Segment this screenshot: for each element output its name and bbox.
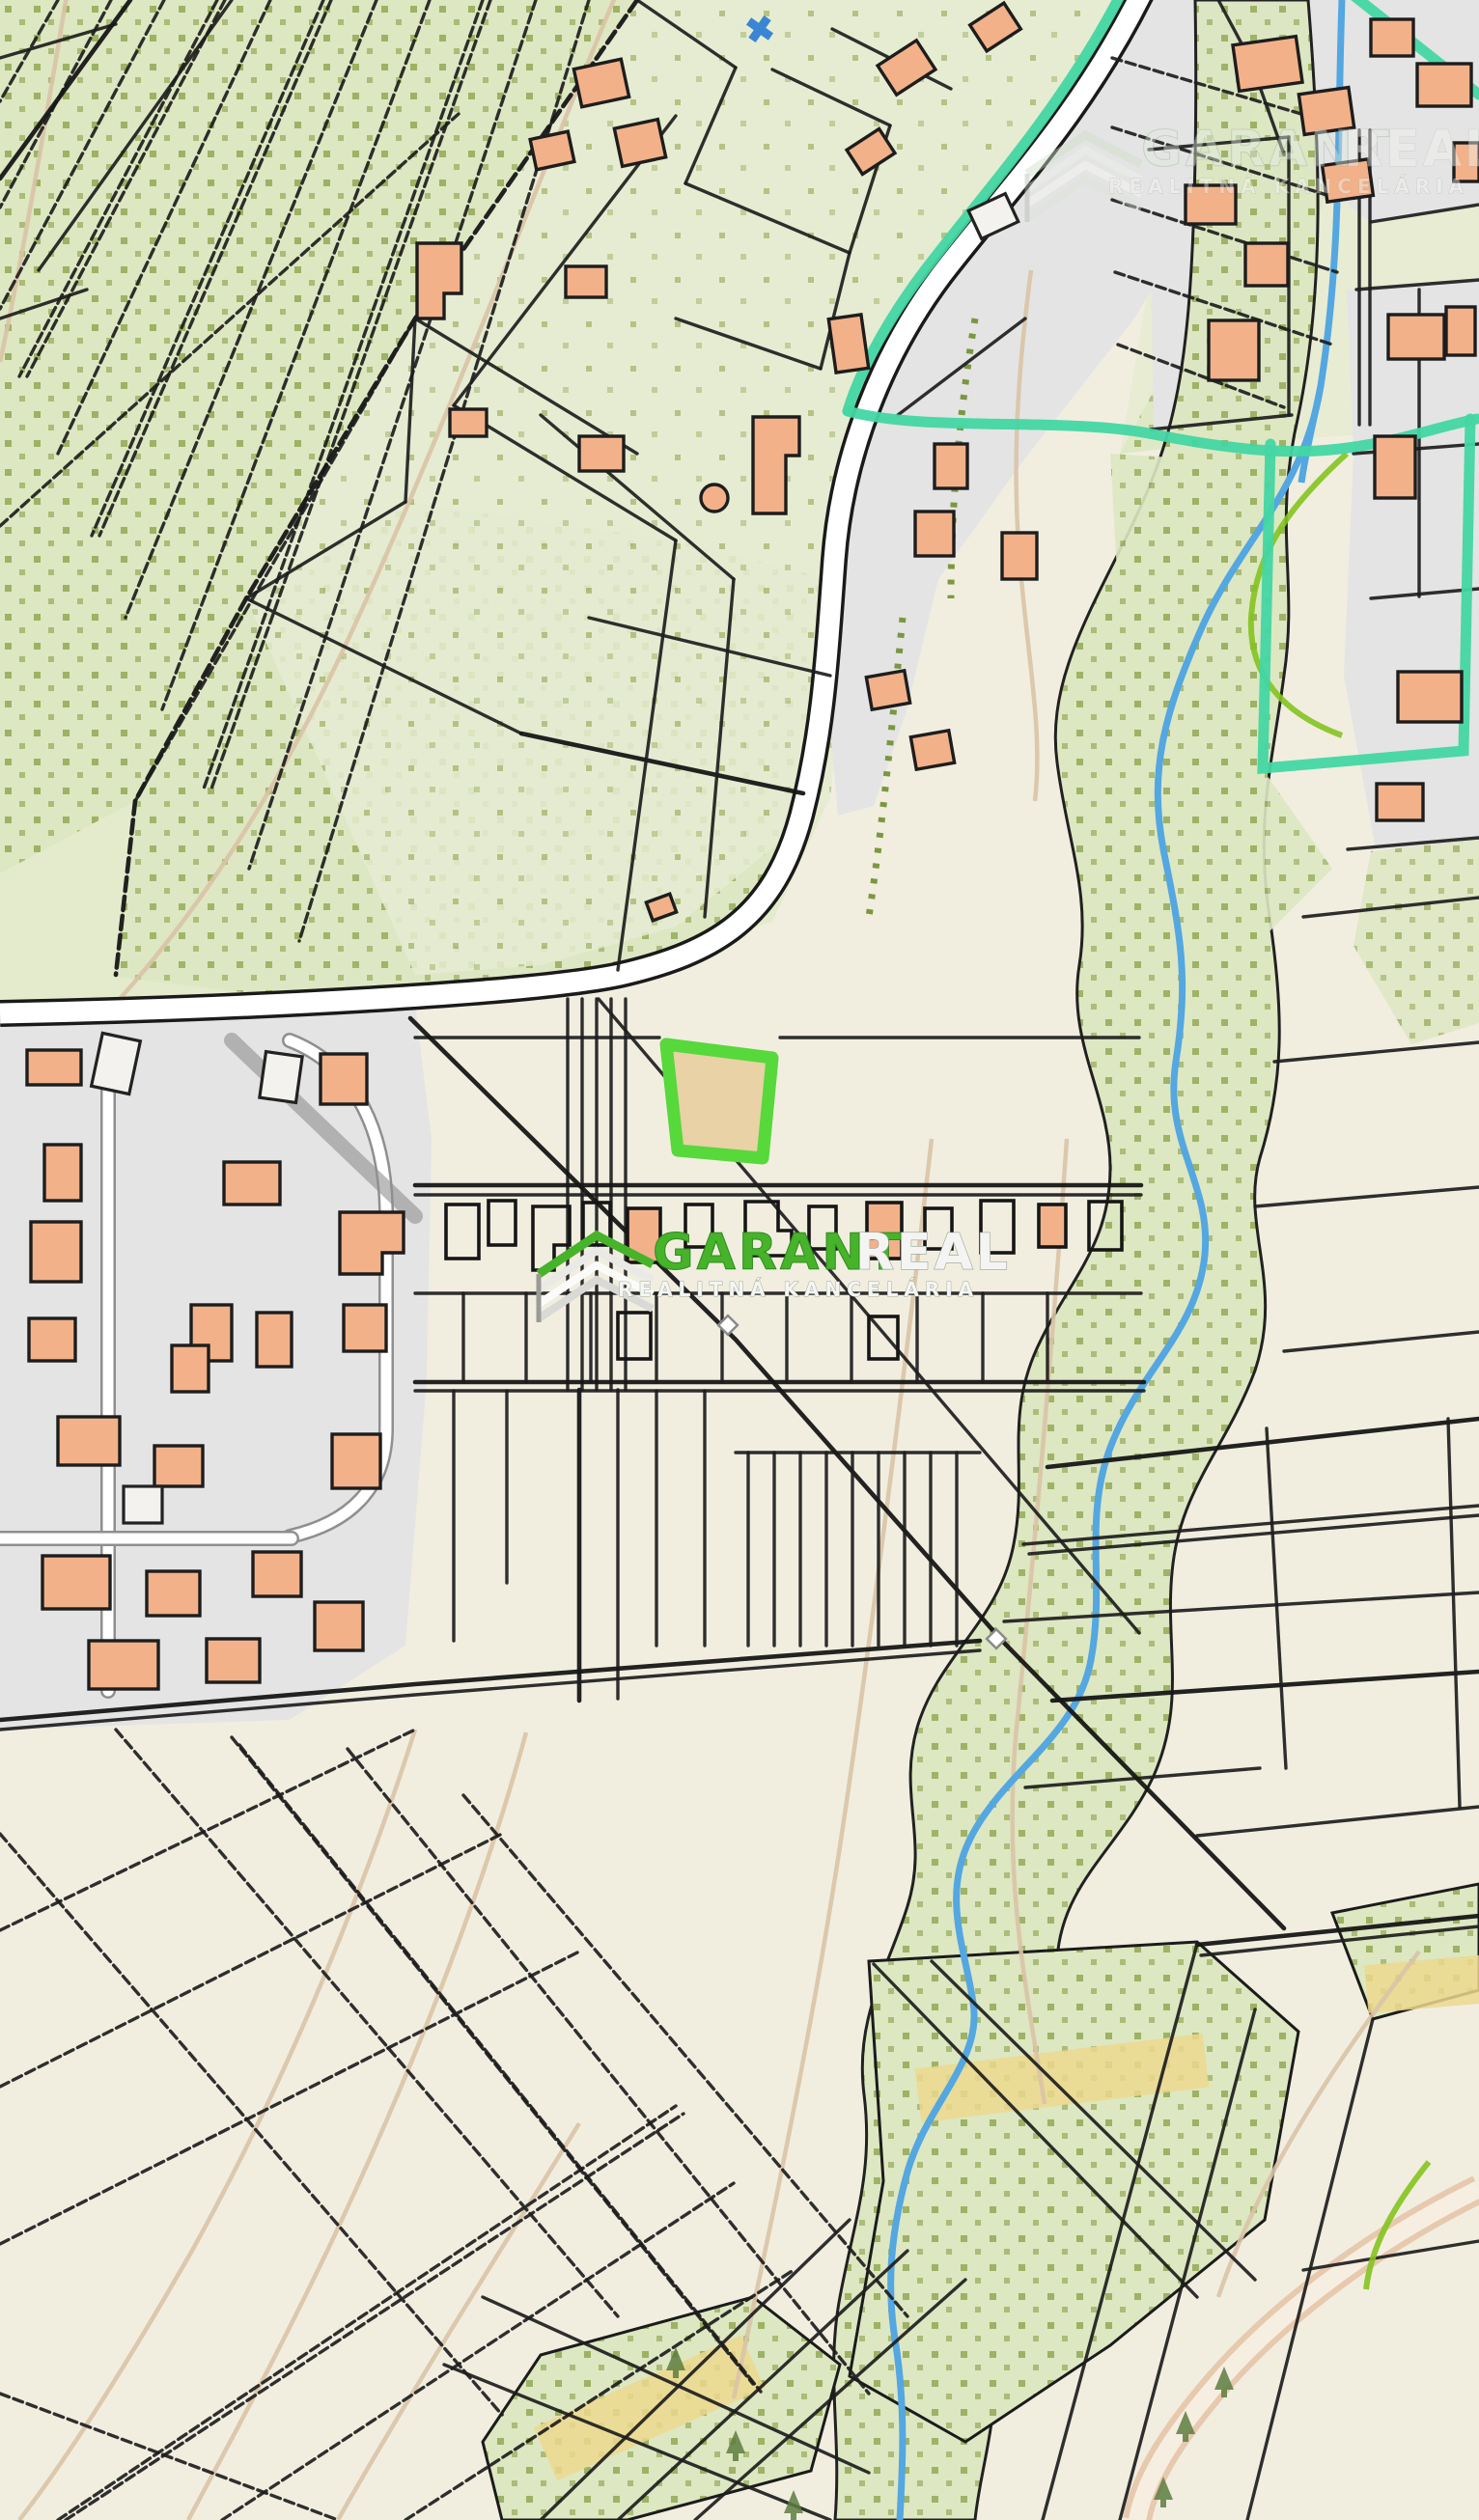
brand-text-real-ghost: REAL — [1344, 121, 1479, 179]
brand-tagline-ghost: REALITNÁ KANCELÁRIA — [1108, 175, 1469, 198]
brand-text-real: REAL — [855, 1224, 1011, 1282]
brand-tagline: REALITNÁ KANCELÁRIA — [618, 1278, 979, 1301]
map-canvas[interactable]: GARANT REAL REALITNÁ KANCELÁRIA GARANT R… — [0, 0, 1479, 2520]
highlighted-parcel[interactable] — [666, 1044, 772, 1158]
map-viewport[interactable]: GARANT REAL REALITNÁ KANCELÁRIA GARANT R… — [0, 0, 1479, 2520]
